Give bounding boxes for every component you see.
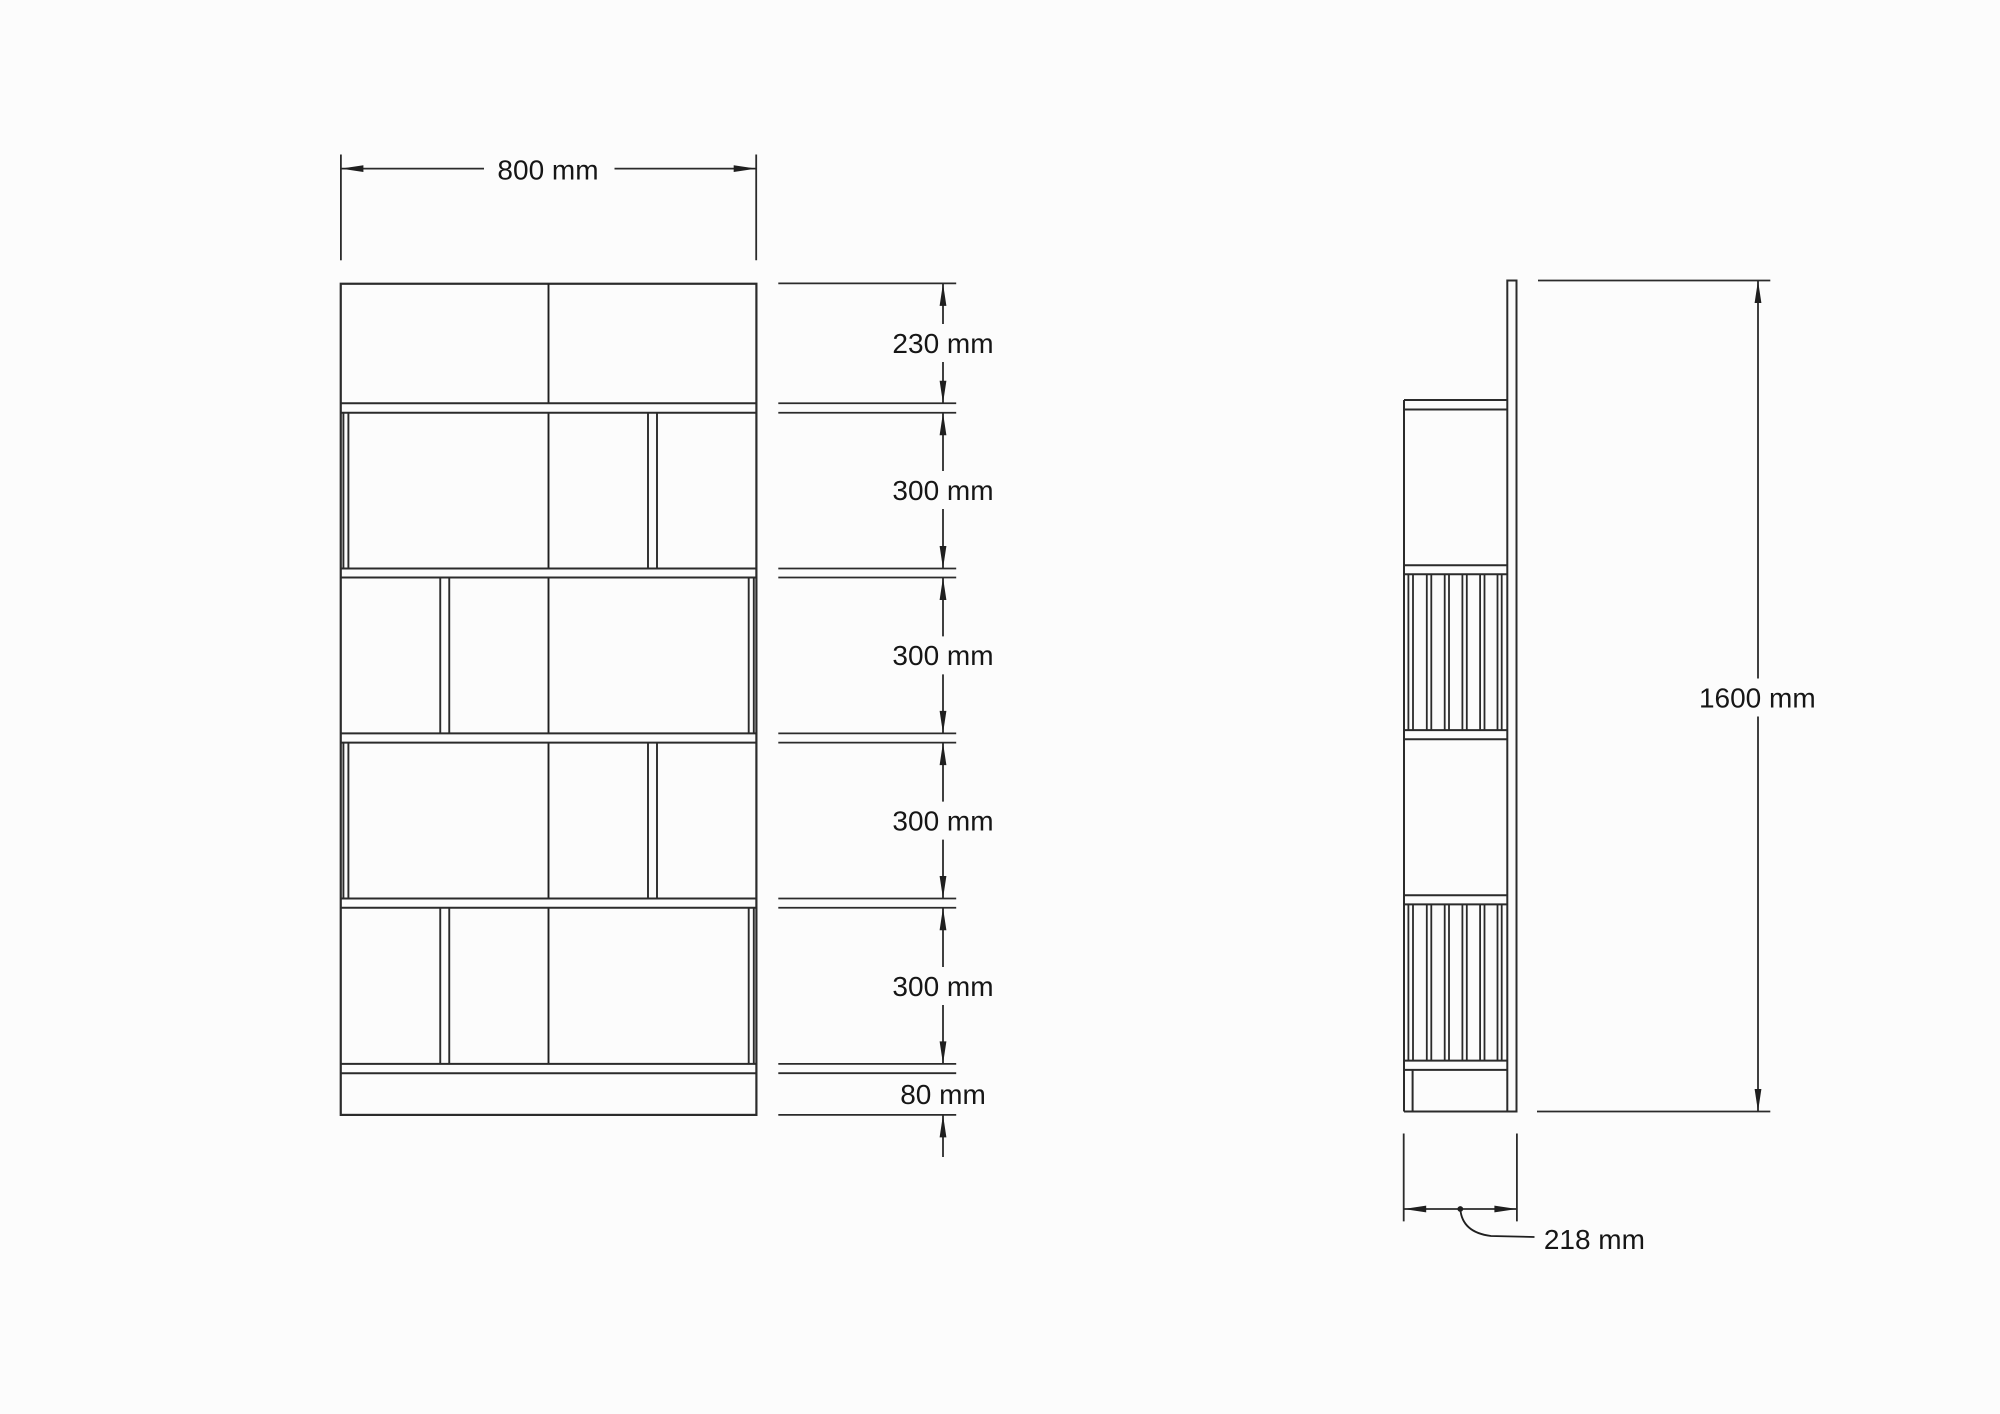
svg-text:1600 mm: 1600 mm [1699,682,1816,713]
svg-text:300 mm: 300 mm [892,805,993,836]
svg-text:300 mm: 300 mm [892,640,993,671]
svg-text:800 mm: 800 mm [497,154,598,185]
svg-text:300 mm: 300 mm [892,971,993,1002]
svg-text:300 mm: 300 mm [892,475,993,506]
svg-text:218 mm: 218 mm [1544,1224,1645,1255]
svg-text:80 mm: 80 mm [900,1079,986,1110]
svg-text:230 mm: 230 mm [892,328,993,359]
